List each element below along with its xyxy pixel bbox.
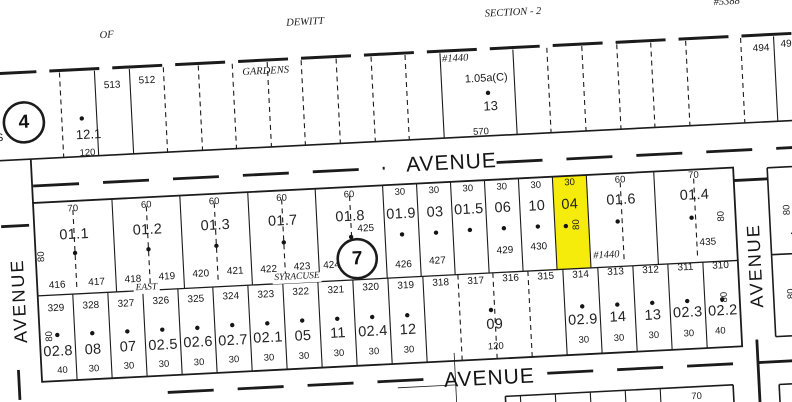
area-label-1-05a: 1.05a(C)	[465, 72, 508, 85]
lot-number: 318	[432, 278, 449, 289]
parcel-label-12-1[interactable]: 12.1	[76, 127, 102, 141]
frontage-dim: 70	[688, 171, 699, 181]
depth-dim-80-west-upper: 80	[37, 251, 47, 262]
parcel-label-04-highlighted[interactable]: 04	[561, 197, 578, 212]
frontage-dim: 30	[368, 347, 379, 357]
parcel-label-01-9[interactable]: 01.9	[386, 206, 416, 222]
frontage-dim: 30	[530, 181, 541, 191]
lot-number-513: 513	[104, 80, 121, 91]
parcel-label-13-north[interactable]: 13	[483, 99, 498, 113]
parcel-label-02-6[interactable]: 02.6	[183, 335, 213, 351]
lot-number: 315	[537, 272, 554, 283]
parcel-label-13[interactable]: 13	[644, 308, 661, 323]
lot-number: 319	[397, 281, 414, 292]
parcel-label-07[interactable]: 07	[119, 340, 136, 355]
parcel-label-02-7[interactable]: 02.7	[218, 333, 248, 349]
lot-number: 312	[642, 265, 659, 276]
parcel-label-08[interactable]: 08	[84, 343, 101, 358]
parcel-label-09[interactable]: 09	[486, 317, 503, 332]
parcel-label-01-7[interactable]: 01.7	[268, 213, 298, 229]
plat-name-east: EAST	[133, 283, 159, 294]
lot-number: 328	[82, 301, 99, 312]
lot-number: 324	[222, 292, 239, 303]
depth-dim-80-east-block-lower: 80	[787, 288, 792, 299]
parcel-label-02-3[interactable]: 02.3	[673, 305, 703, 321]
frontage-dim-70-south: 70	[691, 392, 702, 402]
lot-number: 321	[327, 285, 344, 296]
lot-number: 316	[502, 274, 519, 285]
depth-dim-80-east-block-upper: 80	[782, 204, 792, 215]
lot-number: 310	[712, 261, 729, 272]
frontage-dim-120: 120	[79, 148, 95, 158]
rotated-plat-canvas: OF DEWITT SECTION - 2 #5388 4 12.1 120 5…	[0, 3, 792, 402]
lot-number: 322	[292, 287, 309, 298]
frontage-dim: 30	[394, 187, 405, 197]
lot-number: 425	[357, 224, 374, 235]
street-name-avenue-east: AVENUE	[744, 223, 766, 308]
depth-dim-80-parcel-04: 80	[572, 219, 582, 230]
depth-dim-570: 570	[473, 127, 489, 137]
frontage-dim: 30	[159, 360, 170, 370]
frontage-dim: 60	[276, 193, 287, 203]
depth-dim-80-east-upper: 80	[717, 211, 727, 222]
parcel-label-01-4[interactable]: 01.4	[679, 188, 709, 204]
plat-map-viewport: OF DEWITT SECTION - 2 #5388 4 12.1 120 5…	[0, 0, 792, 402]
parcel-label-05[interactable]: 05	[294, 329, 311, 344]
label-ref-1440-block: #1440	[593, 250, 620, 262]
frontage-dim: 30	[428, 186, 439, 196]
label-ref-1440-north: #1440	[442, 54, 469, 66]
frontage-dim: 30	[89, 364, 100, 374]
parcel-label-03[interactable]: 03	[426, 205, 443, 220]
frontage-dim: 30	[683, 329, 694, 339]
parcel-label-02-5[interactable]: 02.5	[148, 338, 178, 354]
frontage-dim: 30	[578, 335, 589, 345]
frontage-dim: 30	[462, 184, 473, 194]
street-name-avenue-west: AVENUE	[8, 258, 30, 343]
frontage-dim: 40	[715, 326, 726, 336]
lot-number-493: 493	[780, 39, 792, 50]
parcel-label-11[interactable]: 11	[330, 326, 346, 341]
frontage-dim: 30	[264, 353, 275, 363]
parcel-label-02-1[interactable]: 02.1	[253, 330, 283, 346]
frontage-dim: 30	[228, 355, 239, 365]
frontage-dim: 30	[194, 358, 205, 368]
parcel-label-02-2[interactable]: 02.2	[708, 303, 738, 319]
frontage-dim-highlighted: 30	[564, 178, 575, 188]
lot-number: 325	[187, 294, 204, 305]
lot-number: 317	[467, 276, 484, 287]
parcel-label-02-9[interactable]: 02.9	[568, 312, 598, 328]
lot-number: 435	[699, 238, 716, 249]
label-of: OF	[99, 30, 114, 41]
frontage-dim: 30	[124, 361, 135, 371]
parcel-label-01-1[interactable]: 01.1	[59, 227, 89, 243]
lot-number: 314	[572, 270, 589, 281]
frontage-dim: 30	[496, 182, 507, 192]
lot-number: 311	[677, 263, 693, 274]
label-ref-5388: #5388	[713, 0, 740, 9]
parcel-label-01-5[interactable]: 01.5	[454, 202, 484, 218]
depth-dim-80-east-lower: 80	[720, 292, 730, 303]
parcel-label-01-6[interactable]: 01.6	[606, 192, 636, 208]
lot-number: 417	[88, 277, 105, 288]
lot-number: 313	[607, 267, 624, 278]
lot-number: 416	[49, 280, 66, 291]
index-circle-7-label[interactable]: 7	[351, 249, 363, 269]
lot-number: 429	[496, 246, 513, 257]
parcel-label-01-2[interactable]: 01.2	[132, 222, 162, 238]
lot-number-494: 494	[753, 44, 770, 55]
lot-number-512: 512	[138, 76, 155, 87]
frontage-dim: 60	[141, 200, 152, 210]
depth-dim-80-west-lower: 80	[45, 331, 55, 342]
frontage-dim: 30	[333, 349, 344, 359]
frontage-dim-120: 120	[488, 342, 504, 352]
parcel-label-12[interactable]: 12	[399, 323, 416, 338]
frontage-dim: 30	[613, 334, 624, 344]
lot-number: 329	[47, 304, 64, 315]
frontage-dim: 60	[343, 190, 354, 200]
lot-number: 424	[323, 261, 340, 272]
lot-number: 421	[227, 266, 244, 277]
frontage-dim: 60	[615, 175, 626, 185]
lot-number: 430	[530, 242, 547, 253]
parcel-label-06[interactable]: 06	[494, 201, 511, 216]
index-circle-4-label[interactable]: 4	[18, 113, 30, 133]
lot-number: 323	[257, 290, 274, 301]
south-strip-lines	[505, 379, 792, 402]
lot-number: 419	[158, 272, 175, 283]
lot-number: 327	[117, 299, 134, 310]
frontage-dim: 30	[403, 345, 414, 355]
parcel-label-01-3[interactable]: 01.3	[200, 218, 230, 234]
parcel-label-02-4[interactable]: 02.4	[358, 324, 388, 340]
frontage-dim: 60	[209, 197, 220, 207]
frontage-dim: 70	[67, 204, 78, 214]
section-boundary-line	[0, 31, 792, 74]
lot-number: 326	[152, 296, 169, 307]
lot-number: 427	[429, 256, 446, 267]
clipped-edge-text: S	[0, 133, 4, 144]
street-name-avenue-south: AVENUE	[444, 365, 536, 391]
parcel-label-02-8[interactable]: 02.8	[43, 344, 73, 360]
frontage-dim: 30	[648, 331, 659, 341]
street-name-avenue-north: AVENUE	[406, 150, 498, 176]
index-circles	[3, 85, 378, 296]
east-block-lines	[767, 164, 792, 337]
frontage-dim: 30	[298, 351, 309, 361]
parcel-label-10[interactable]: 10	[528, 199, 545, 214]
parcel-label-14[interactable]: 14	[609, 310, 626, 325]
frontage-dim: 40	[57, 366, 68, 376]
lot-number: 320	[362, 283, 379, 294]
label-dewitt: DEWITT	[286, 17, 324, 29]
lot-number: 426	[395, 260, 412, 271]
lot-number: 420	[192, 269, 209, 280]
